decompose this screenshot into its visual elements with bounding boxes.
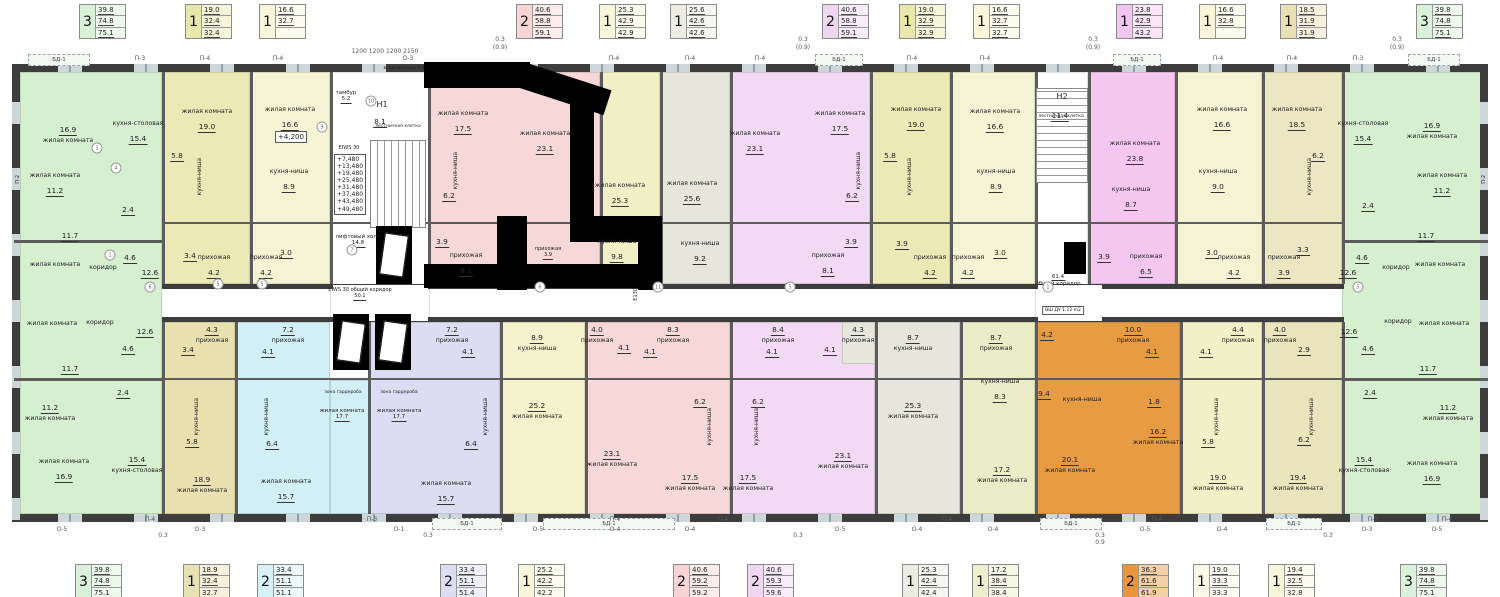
room-label: 2.4 — [121, 198, 135, 217]
black-shape-elevator-or-highlight — [1064, 242, 1086, 274]
area-values: 19.033.333.3 — [1209, 565, 1239, 597]
edge-label: О-3 — [1362, 526, 1373, 533]
balcony: БД-1 — [1266, 518, 1322, 530]
edge-label: 0.3 — [798, 36, 808, 43]
room-label: 4.0прихожая — [1264, 318, 1297, 344]
apartment-badge[interactable]: 118.531.931.9 — [1280, 4, 1327, 39]
room-label: 16.9жилая комната — [1407, 114, 1457, 140]
unit-divider-wall — [875, 322, 878, 514]
unit-divider-wall — [162, 322, 165, 514]
room-label: 11.2жилая комната — [1423, 396, 1473, 422]
edge-label: П-4 — [610, 516, 621, 523]
room-label: лестничная клетка — [1038, 114, 1084, 119]
door-tag: 7 — [347, 245, 358, 256]
unit-divider-wall — [730, 72, 733, 284]
room-label: вход переход 5.9 — [383, 66, 424, 71]
room-count: 1 — [186, 5, 201, 38]
room-label: 8.9кухня-ниша — [518, 326, 557, 352]
room-label: кухня-ниша9.8 — [598, 238, 637, 264]
room-label: +7,480 +13,480 +19,480 +25,480 +31,480 +… — [334, 154, 366, 215]
edge-label: 1200 1200 1200 2150 — [352, 48, 419, 55]
room-label: 6.2 — [845, 184, 859, 203]
room-label: прихожая8.1 — [812, 252, 845, 278]
unit-divider-wall — [1088, 72, 1091, 284]
room-label: 25.2жилая комната — [512, 394, 562, 420]
apartment-badge[interactable]: 339.874.875.1 — [79, 4, 126, 39]
room-label: 6.2 — [751, 390, 765, 409]
room-label: 8.7прихожая — [980, 326, 1013, 352]
exterior-wall — [12, 64, 20, 522]
area-values: 36.361.661.9 — [1138, 565, 1168, 597]
edge-label: П-4 — [755, 55, 766, 62]
edge-label: П-3 — [135, 55, 146, 62]
area-values: 16.632.732.7 — [989, 5, 1019, 38]
door-tag: 5 — [785, 282, 796, 293]
area-values: 18.531.931.9 — [1296, 5, 1326, 38]
apartment-badge[interactable]: 125.242.242.2 — [518, 564, 565, 597]
interior-wall — [162, 222, 1342, 224]
room-label: 11.7 — [61, 357, 79, 376]
room-label: прихожая4.2 — [952, 254, 985, 280]
edge-label: П-3 — [1368, 516, 1379, 523]
apartment-badge[interactable]: 125.642.642.6 — [670, 4, 717, 39]
room-label: 9.4 — [1037, 382, 1051, 401]
room-label: жилая комната25.3 — [595, 182, 645, 208]
room-count: 1 — [184, 565, 199, 597]
edge-label: 0.3 — [158, 532, 168, 539]
room-label: 2.9 — [1297, 338, 1311, 357]
room-label: 4.1 — [261, 340, 275, 359]
edge-label: П-4 — [718, 516, 729, 523]
edge-label: П-4 — [907, 55, 918, 62]
edge-label: П-4 — [1442, 516, 1453, 523]
room-label: кухня-столовая15.4 — [1338, 120, 1389, 146]
room-label: 23.1жилая комната — [587, 442, 637, 468]
edge-label: П-3 — [367, 516, 378, 523]
room-label: лифтовый холл14.8 — [336, 234, 381, 248]
area-values: 25.242.242.2 — [534, 565, 564, 597]
unit-divider-wall — [960, 322, 963, 514]
room-label: EIWS 30 — [339, 146, 360, 152]
door-tag: 9 — [317, 122, 328, 133]
edge-label: П-4 — [1152, 516, 1163, 523]
edge-label: 0.3 — [423, 532, 433, 539]
room-label: жилая комната — [27, 320, 77, 327]
room-label: 4.0прихожая — [581, 318, 614, 344]
room-label: кухня-ниша8.3 — [981, 378, 1020, 404]
room-count: 2 — [674, 565, 689, 597]
room-label: 16.2жилая комната — [1133, 420, 1183, 446]
room-label: 4.3прихожая — [842, 318, 875, 344]
room-label: прихожая4.2 — [250, 254, 283, 280]
apartment-bot-3[interactable] — [330, 380, 370, 514]
apartment-badge[interactable]: 240.658.859.1 — [822, 4, 869, 39]
balcony: БД-1 — [28, 54, 90, 66]
room-label: 12.6 — [136, 320, 154, 339]
apartment-badge[interactable]: 116.632.8 — [1199, 4, 1246, 39]
apartment-badge[interactable]: 233.451.151.4 — [440, 564, 487, 597]
room-label: 4.4прихожая — [1222, 318, 1255, 344]
room-label: 2.4 — [1361, 194, 1375, 213]
door-tag: 5 — [257, 279, 268, 290]
edge-label: П-4 — [942, 516, 953, 523]
room-label: кухня-ниша8.9 — [270, 168, 309, 194]
room-count: 1 — [600, 5, 615, 38]
room-label: П-2 — [16, 175, 22, 184]
room-count: 1 — [903, 565, 918, 597]
room-label: кухня-ниша9.2 — [681, 240, 720, 266]
unit-divider-wall — [428, 72, 431, 284]
room-label: жилая комната16.9 — [39, 458, 89, 484]
room-label: 4.1 — [823, 338, 837, 357]
edge-label: (0.9) — [1086, 44, 1100, 51]
edge-label: П-4 — [1213, 55, 1224, 62]
room-label: жилая комната11.2 — [1417, 172, 1467, 198]
room-label: жилая комната — [1419, 320, 1469, 327]
room-label: 5.8 — [185, 430, 199, 449]
room-label: 15.4кухня-столовая — [1339, 448, 1390, 474]
unit-divider-wall — [870, 72, 873, 284]
unit-divider-wall — [1342, 322, 1345, 514]
apartment-badge[interactable]: 233.451.151.1 — [257, 564, 304, 597]
apartment-top-7[interactable] — [730, 72, 870, 284]
room-label: 4.1 — [1145, 340, 1159, 359]
door-tag: 5 — [213, 279, 224, 290]
room-label: кухня-ниша — [1063, 396, 1102, 403]
room-label: кухня-ниша — [1306, 158, 1313, 195]
room-label: 19.0жилая комната — [1193, 466, 1243, 492]
apartment-badge[interactable]: 117.238.438.4 — [972, 564, 1019, 597]
room-label: 11.7 — [1417, 224, 1435, 243]
room-label: 4.1 — [765, 340, 779, 359]
apartment-badge[interactable]: 118.932.432.7 — [183, 564, 230, 597]
edge-label: О-4 — [912, 526, 923, 533]
edge-label: П-4 — [685, 55, 696, 62]
edge-label: О-5 — [1140, 526, 1151, 533]
room-label: 4.6 — [121, 337, 135, 356]
area-values: 39.874.875.1 — [1432, 5, 1462, 38]
unit-divider-wall — [950, 72, 953, 284]
area-values: 33.451.151.4 — [456, 565, 486, 597]
area-values: 25.642.642.6 — [686, 5, 716, 38]
room-label: жилая комната23.8 — [1110, 140, 1160, 166]
room-label: 6.2 — [693, 390, 707, 409]
edge-label: О-1 — [394, 526, 405, 533]
apartment-badge[interactable]: 116.632.732.7 — [973, 4, 1020, 39]
room-label: жилая комната17.5 — [438, 110, 488, 136]
room-label: 23.1жилая комната — [818, 444, 868, 470]
edge-label: О-3 — [403, 55, 414, 62]
edge-label: О-4 — [685, 526, 696, 533]
apartment-badge[interactable]: 240.659.359.6 — [747, 564, 794, 597]
room-label: коридор — [86, 319, 113, 326]
interior-wall — [14, 378, 162, 381]
unit-divider-wall — [1175, 72, 1178, 284]
apartment-badge[interactable]: 125.342.442.4 — [902, 564, 949, 597]
edge-label: П-4 — [609, 55, 620, 62]
room-label: кухня-ниша — [753, 408, 760, 445]
room-label: жилая комната15.7 — [421, 480, 471, 506]
area-values: 40.659.359.6 — [763, 565, 793, 597]
edge-label: О-5 — [1432, 526, 1443, 533]
room-label: 5.8 — [170, 144, 184, 163]
edge-label: П-4 — [1287, 55, 1298, 62]
room-label: кухня-столовая15.4 — [113, 120, 164, 146]
room-label: 3.4 — [181, 338, 195, 357]
room-label: Н2 — [1056, 92, 1067, 101]
room-label: жилая комната17.5 — [815, 110, 865, 136]
door-tag: 1 — [105, 250, 116, 261]
room-label: 6.2 — [1297, 428, 1311, 447]
unit-divider-wall — [1342, 72, 1345, 284]
area-values: 19.032.432.4 — [201, 5, 231, 38]
apartment-badge[interactable]: 339.874.875.1 — [1416, 4, 1463, 39]
room-label: коридор — [1384, 318, 1411, 325]
room-count: 2 — [441, 565, 456, 597]
edge-label: О-5 — [835, 526, 846, 533]
room-label: 3.4 — [183, 244, 197, 263]
staircase — [370, 140, 426, 228]
area-values: 40.659.259.2 — [689, 565, 719, 597]
apartment-badge[interactable]: 119.033.333.3 — [1193, 564, 1240, 597]
door-tag: 3 — [92, 143, 103, 154]
room-label: 17.5жилая комната — [665, 466, 715, 492]
room-label: прихожая6.5 — [1130, 253, 1163, 279]
room-label: 17.5жилая комната — [723, 466, 773, 492]
edge-label: О-5 — [57, 526, 68, 533]
room-label: 20.1жилая комната — [1045, 448, 1095, 474]
edge-label: 0.3 — [1088, 36, 1098, 43]
room-label: 12.6 — [1339, 261, 1357, 280]
area-values: 19.432.532.8 — [1284, 565, 1314, 597]
room-label: жилая комната18.5 — [1272, 106, 1322, 132]
room-label: жилая комната19.0 — [891, 106, 941, 132]
room-label: EIWS 30 общий коридор50.1 — [328, 288, 391, 301]
room-label: прихожая8.1 — [450, 252, 483, 278]
room-label: 3.0 — [993, 241, 1007, 260]
area-values: 16.632.8 — [1215, 5, 1245, 38]
apartment-badge[interactable]: 119.432.532.8 — [1268, 564, 1315, 597]
unit-divider-wall — [162, 72, 165, 284]
unit-divider-wall — [585, 322, 588, 514]
exterior-wall — [1480, 64, 1488, 522]
room-label: жилая комната17.7 — [320, 408, 365, 422]
apartment-badge[interactable]: 123.842.943.2 — [1116, 4, 1163, 39]
room-label: 6.4 — [265, 432, 279, 451]
room-label: жилая комната16.6 — [970, 108, 1020, 134]
edge-label: 0.3 — [495, 36, 505, 43]
room-label: 11.2жилая комната — [25, 396, 75, 422]
door-tag: 6 — [145, 282, 156, 293]
room-count: 2 — [748, 565, 763, 597]
interior-wall — [14, 240, 162, 243]
room-label: 17.2жилая комната — [977, 458, 1027, 484]
apartment-badge[interactable]: 240.658.859.1 — [516, 4, 563, 39]
edge-label: 0.3 — [793, 532, 803, 539]
area-values: 25.342.942.9 — [615, 5, 645, 38]
room-label: кухня-ниша — [263, 398, 270, 435]
room-label: прихожая3.9 — [535, 247, 561, 260]
unit-divider-wall — [1180, 322, 1183, 514]
room-label: 25.3жилая комната — [888, 394, 938, 420]
interior-wall — [162, 378, 1342, 380]
area-values: 39.874.875.1 — [95, 5, 125, 38]
room-label: прихожая4.2 — [914, 254, 947, 280]
area-values: 18.932.432.7 — [199, 565, 229, 597]
room-label: лестничная клетка — [375, 124, 421, 129]
edge-label: П-4 — [145, 516, 156, 523]
area-values: 39.874.875.1 — [1416, 565, 1446, 597]
room-label: 6.2 — [1311, 144, 1325, 163]
room-label: жилая комната19.0 — [182, 108, 232, 134]
room-label: кухня-ниша8.7 — [1112, 186, 1151, 212]
area-values: 40.658.859.1 — [838, 5, 868, 38]
room-label: 4.2 — [1040, 323, 1054, 342]
room-label: кухня-ниша — [906, 158, 913, 195]
room-count: 1 — [1200, 5, 1215, 38]
unit-divider-wall — [500, 322, 503, 514]
room-count: 1 — [1117, 5, 1132, 38]
unit-divider-wall — [250, 72, 253, 284]
exterior-wall — [12, 64, 1488, 72]
apartment-badge[interactable]: 125.342.942.9 — [599, 4, 646, 39]
edge-label: П-3 — [1353, 55, 1364, 62]
room-label: тамбур5.2 — [336, 90, 357, 104]
unit-divider-wall — [1262, 322, 1265, 514]
room-label: жилая комната — [1415, 261, 1465, 268]
room-label: кухня-ниша — [482, 398, 489, 435]
edge-label: О-4 — [610, 526, 621, 533]
room-label: 4.6 — [1361, 337, 1375, 356]
edge-label: (0.9) — [1390, 44, 1404, 51]
balcony: БД-1 — [1113, 54, 1161, 66]
apartment-badge[interactable]: 119.032.932.9 — [899, 4, 946, 39]
room-label: 3.9 — [1097, 245, 1111, 264]
room-label: кухня-ниша8.9 — [977, 168, 1016, 194]
edge-label: 0.3 — [1392, 36, 1402, 43]
unit-divider-wall — [235, 322, 238, 514]
room-label: 4.3прихожая — [196, 318, 229, 344]
room-count: 2 — [1123, 565, 1138, 597]
room-label: 8.3прихожая — [657, 318, 690, 344]
room-label: 11.7 — [61, 224, 79, 243]
room-label: Н1 — [376, 100, 387, 109]
black-shape-elevator-or-highlight — [424, 62, 530, 88]
edge-label: О-3 — [195, 526, 206, 533]
balcony: БД-1 — [1040, 518, 1102, 530]
room-label: Е130 — [634, 288, 640, 301]
room-count: 2 — [517, 5, 532, 38]
apartment-badge[interactable]: 339.874.875.1 — [75, 564, 122, 597]
room-label: 1.8 — [1147, 390, 1161, 409]
room-count: 1 — [973, 565, 988, 597]
apartment-badge[interactable]: 119.032.432.4 — [185, 4, 232, 39]
room-label: 5.8 — [1201, 430, 1215, 449]
edge-label: О-4 — [1217, 526, 1228, 533]
area-values: 17.238.438.4 — [988, 565, 1018, 597]
room-label: жилая комната — [30, 261, 80, 268]
door-tag: 4 — [111, 163, 122, 174]
room-label: 12.6 — [1340, 320, 1358, 339]
room-count: 1 — [519, 565, 534, 597]
apartment-badge[interactable]: 236.361.661.9 — [1122, 564, 1169, 597]
apartment-badge[interactable]: 116.632.7 — [259, 4, 306, 39]
room-count: 3 — [80, 5, 95, 38]
door-tag: 6 — [535, 282, 546, 293]
floor-plan-page: БД-1БД-1БД-1БД-1БД-1БД-1БД-1БД-116.9жила… — [0, 0, 1500, 597]
room-label: 8.7кухня-ниша — [894, 326, 933, 352]
room-label: 4.1 — [461, 340, 475, 359]
room-label: 3.9 — [895, 232, 909, 251]
room-count: 3 — [1401, 565, 1416, 597]
room-label: прихожая4.2 — [198, 254, 231, 280]
area-values: 16.632.7 — [275, 5, 305, 38]
room-label: коридор — [1382, 264, 1409, 271]
edge-label: П-4 — [980, 55, 991, 62]
room-count: 1 — [1281, 5, 1296, 38]
room-label: 4.1 — [1199, 340, 1213, 359]
apartment-top-2[interactable] — [162, 72, 250, 284]
edge-label: О-4 — [988, 526, 999, 533]
room-count: 3 — [76, 565, 91, 597]
door-tag: 1 — [1043, 282, 1054, 293]
room-count: 1 — [260, 5, 275, 38]
room-label: 12.6 — [141, 261, 159, 280]
room-label: кухня-ниша — [196, 158, 203, 195]
edge-label: П-4 — [200, 55, 211, 62]
room-count: 1 — [671, 5, 686, 38]
room-label: кухня-ниша9.0 — [1199, 168, 1238, 194]
balcony: БД-1 — [1408, 54, 1460, 66]
room-count: 1 — [1269, 565, 1284, 597]
edge-label: О-5 — [533, 526, 544, 533]
unit-divider-wall — [330, 72, 333, 284]
apartment-badge[interactable]: 339.874.875.1 — [1400, 564, 1447, 597]
room-label: 3.9 — [844, 230, 858, 249]
room-label: 5.8 — [883, 144, 897, 163]
edge-label: 0.9 — [1095, 539, 1105, 546]
room-label: 19.4жилая комната — [1273, 466, 1323, 492]
room-label: жилая комната16.6 — [265, 106, 315, 132]
edge-label: 0.3 — [1095, 532, 1105, 539]
room-label: жилая комната17.7 — [377, 408, 422, 422]
room-label: 18.9жилая комната — [177, 468, 227, 494]
area-values: 40.658.859.1 — [532, 5, 562, 38]
room-label: 16.9жилая комната — [43, 118, 93, 144]
room-label: жилая комната11.2 — [30, 172, 80, 198]
unit-divider-wall — [1262, 72, 1265, 284]
edge-label: П-4 — [273, 55, 284, 62]
room-label: жилая комната25.6 — [667, 180, 717, 206]
room-label: зона гардероба — [324, 390, 361, 395]
room-label: жилая комната16.6 — [1197, 106, 1247, 132]
room-label: 7.2прихожая — [272, 318, 305, 344]
staircase — [1036, 88, 1088, 183]
door-tag: 5 — [1353, 282, 1364, 293]
room-label: жилая комната15.7 — [261, 478, 311, 504]
room-label: 11.7 — [1419, 357, 1437, 376]
door-tag: 11 — [653, 282, 664, 293]
room-label: кухня-ниша — [706, 408, 713, 445]
room-label: 4.1 — [617, 336, 631, 355]
room-label: жилая комната23.1 — [730, 130, 780, 156]
room-label: жилая комната16.9 — [1407, 460, 1457, 486]
door-tag: 10 — [366, 96, 377, 107]
room-label: 2.4 — [1363, 381, 1377, 400]
apartment-badge[interactable]: 240.659.259.2 — [673, 564, 720, 597]
room-label: прихожая3.9 — [1268, 254, 1301, 280]
room-label: коридор — [89, 264, 116, 271]
